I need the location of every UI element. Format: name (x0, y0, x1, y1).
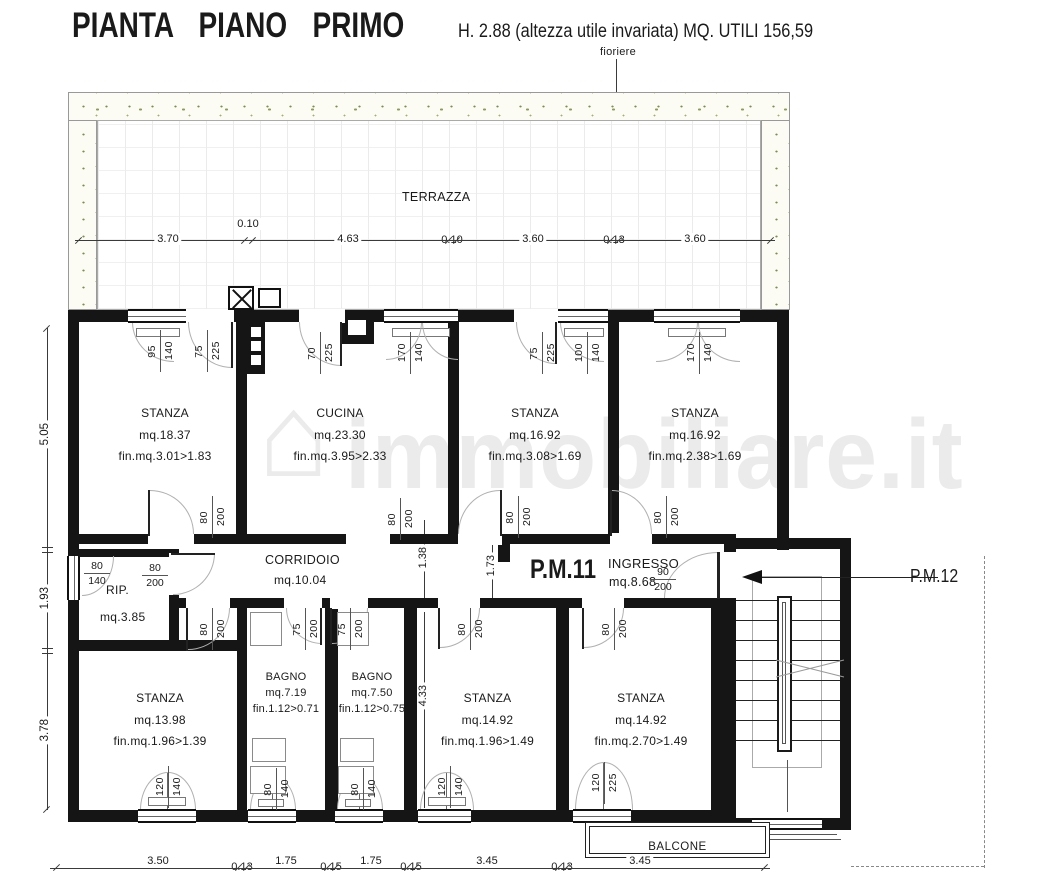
fioriere-label: fioriere (600, 46, 636, 58)
opening-size-label: 100140 (573, 332, 602, 374)
opening-size-label: 90200 (650, 566, 676, 593)
page-subtitle: H. 2.88 (altezza utile invariata) MQ. UT… (458, 21, 813, 43)
door-leaf (438, 608, 440, 649)
opening-size-label: 80200 (600, 608, 629, 650)
window-swing-arc (422, 322, 458, 360)
door-opening (514, 309, 558, 323)
door-leaf (500, 490, 502, 536)
dim-label: 4.33 (417, 682, 429, 709)
door-swing-arc (150, 490, 194, 534)
dim-label: 0.10 (234, 218, 261, 230)
shower (250, 612, 282, 646)
opening-size-label: 80200 (456, 608, 485, 650)
terrace-planter-band-top (68, 92, 790, 121)
dim-label: 0.13 (548, 861, 575, 873)
door-opening (458, 533, 502, 545)
opening-size-label: 80140 (84, 560, 110, 587)
opening-size-label: 80140 (349, 768, 378, 810)
corridor-mq: mq.10.04 (274, 573, 326, 587)
opening-size-label: 80200 (504, 496, 533, 538)
window (67, 556, 80, 600)
terrace-planter-band-right (761, 120, 790, 310)
fioriere-leader-line (616, 59, 617, 92)
pm11-label: P.M.11 (530, 554, 596, 585)
pm12-label: P.M.12 (910, 566, 958, 587)
dim-tick (42, 552, 53, 553)
door-leaf (717, 552, 720, 599)
opening-size-label: 170140 (685, 332, 714, 374)
dim-tick (43, 806, 50, 813)
sink (340, 738, 374, 762)
opening-size-label: 75225 (528, 332, 557, 374)
door-leaf (582, 608, 584, 649)
door-opening (346, 533, 390, 545)
opening-size-label: 75200 (291, 608, 320, 650)
door-leaf (320, 608, 322, 645)
opening-size-label: 80200 (142, 562, 168, 589)
room-label: BAGNOmq.7.50fin.1.12>0.75 (336, 670, 408, 718)
window (128, 309, 186, 323)
dim-label: 3.70 (154, 233, 181, 245)
dim-label: 3.78 (39, 716, 51, 744)
terrace-floor (97, 120, 761, 310)
dim-label: 0.15 (397, 861, 424, 873)
wall (724, 538, 851, 549)
dim-tick (42, 648, 53, 649)
corridor-label: CORRIDOIO (265, 553, 340, 567)
dim-label: 1.38 (417, 544, 429, 571)
window (248, 809, 296, 823)
opening-size-label: 80200 (198, 496, 227, 538)
window (558, 309, 608, 323)
balcony: BALCONE (585, 822, 770, 858)
dim-label: 1.93 (39, 584, 51, 612)
terrace-planter-band-left (68, 120, 97, 310)
sink (252, 738, 286, 762)
opening-size-label: 80200 (652, 496, 681, 538)
dim-label: 0.13 (228, 861, 255, 873)
room-label: CUCINAmq.23.30fin.mq.3.95>2.33 (270, 403, 410, 468)
wall (840, 538, 851, 830)
wall (237, 608, 247, 812)
door-leaf (171, 553, 215, 555)
opening-size-label: 80200 (386, 498, 415, 540)
floor-plan: PIANTA PIANO PRIMO H. 2.88 (altezza util… (0, 0, 1040, 894)
opening-size-label: 80140 (262, 768, 291, 810)
door-leaf (610, 490, 612, 536)
dim-label: 3.45 (626, 855, 653, 867)
door-opening (148, 533, 194, 545)
boundary-dashed-line (851, 866, 984, 867)
boundary-dashed-line (984, 556, 985, 868)
wall (236, 322, 247, 544)
wall (556, 608, 569, 812)
door-leaf (330, 608, 332, 645)
opening-size-label: 120225 (590, 762, 619, 804)
room-label: STANZAmq.14.92fin.mq.2.70>1.49 (572, 688, 710, 753)
opening-size-label: 70225 (306, 332, 335, 374)
window (384, 309, 458, 323)
wall (711, 606, 725, 812)
opening-size-label: 120140 (154, 766, 183, 808)
door-leaf (231, 322, 233, 368)
room-label: BAGNOmq.7.19fin.1.12>0.71 (248, 670, 324, 718)
room-label: STANZAmq.16.92fin.mq.3.08>1.69 (465, 403, 605, 468)
dim-tick (42, 547, 53, 548)
opening-size-label: 80200 (198, 608, 227, 650)
room-label: STANZAmq.14.92fin.mq.1.96>1.49 (420, 688, 555, 753)
door-opening (299, 309, 345, 323)
door-swing-arc (173, 553, 215, 595)
window (418, 809, 471, 823)
rip-mq: mq.3.85 (100, 610, 145, 624)
room-label: STANZAmq.18.37fin.mq.3.01>1.83 (95, 403, 235, 468)
dim-label: 3.45 (473, 855, 500, 867)
dim-label: 1.75 (357, 855, 384, 867)
door-opening (186, 309, 234, 323)
window (654, 309, 740, 323)
room-label: STANZAmq.16.92fin.mq.2.38>1.69 (625, 403, 765, 468)
dim-label: 3.60 (681, 233, 708, 245)
opening-size-label: 170140 (396, 332, 425, 374)
balcony-door (573, 809, 631, 823)
dim-label: 3.50 (144, 855, 171, 867)
dim-label: 1.73 (485, 552, 497, 579)
dim-label: 4.63 (334, 233, 361, 245)
dim-label: 5.05 (39, 420, 51, 448)
dim-label: 0.15 (317, 861, 344, 873)
bottom-dim-line (50, 868, 770, 869)
opening-size-label: 120140 (436, 766, 465, 808)
opening-size-label: 95140 (146, 330, 175, 372)
page-title: PIANTA PIANO PRIMO (72, 6, 404, 46)
dim-label: 1.75 (272, 855, 299, 867)
window (335, 809, 383, 823)
opening-size-label: 75225 (193, 330, 222, 372)
shaft-box (258, 288, 281, 308)
door-opening (724, 552, 736, 598)
door-opening (610, 533, 652, 545)
door-leaf (148, 490, 150, 536)
balcony-label: BALCONE (586, 841, 769, 853)
pm12-arrow-head (742, 570, 762, 584)
window (138, 809, 196, 823)
opening-size-label: 75200 (336, 608, 365, 650)
dim-tick (42, 653, 53, 654)
door-leaf (340, 322, 342, 366)
wall (777, 310, 789, 550)
shaft-x-box (228, 286, 254, 310)
dim-tick (787, 760, 788, 812)
terrace-label: TERRAZZA (402, 190, 470, 204)
dim-label: 3.60 (519, 233, 546, 245)
room-label: STANZAmq.13.98fin.mq.1.96>1.39 (90, 688, 230, 753)
door-leaf (186, 608, 188, 651)
